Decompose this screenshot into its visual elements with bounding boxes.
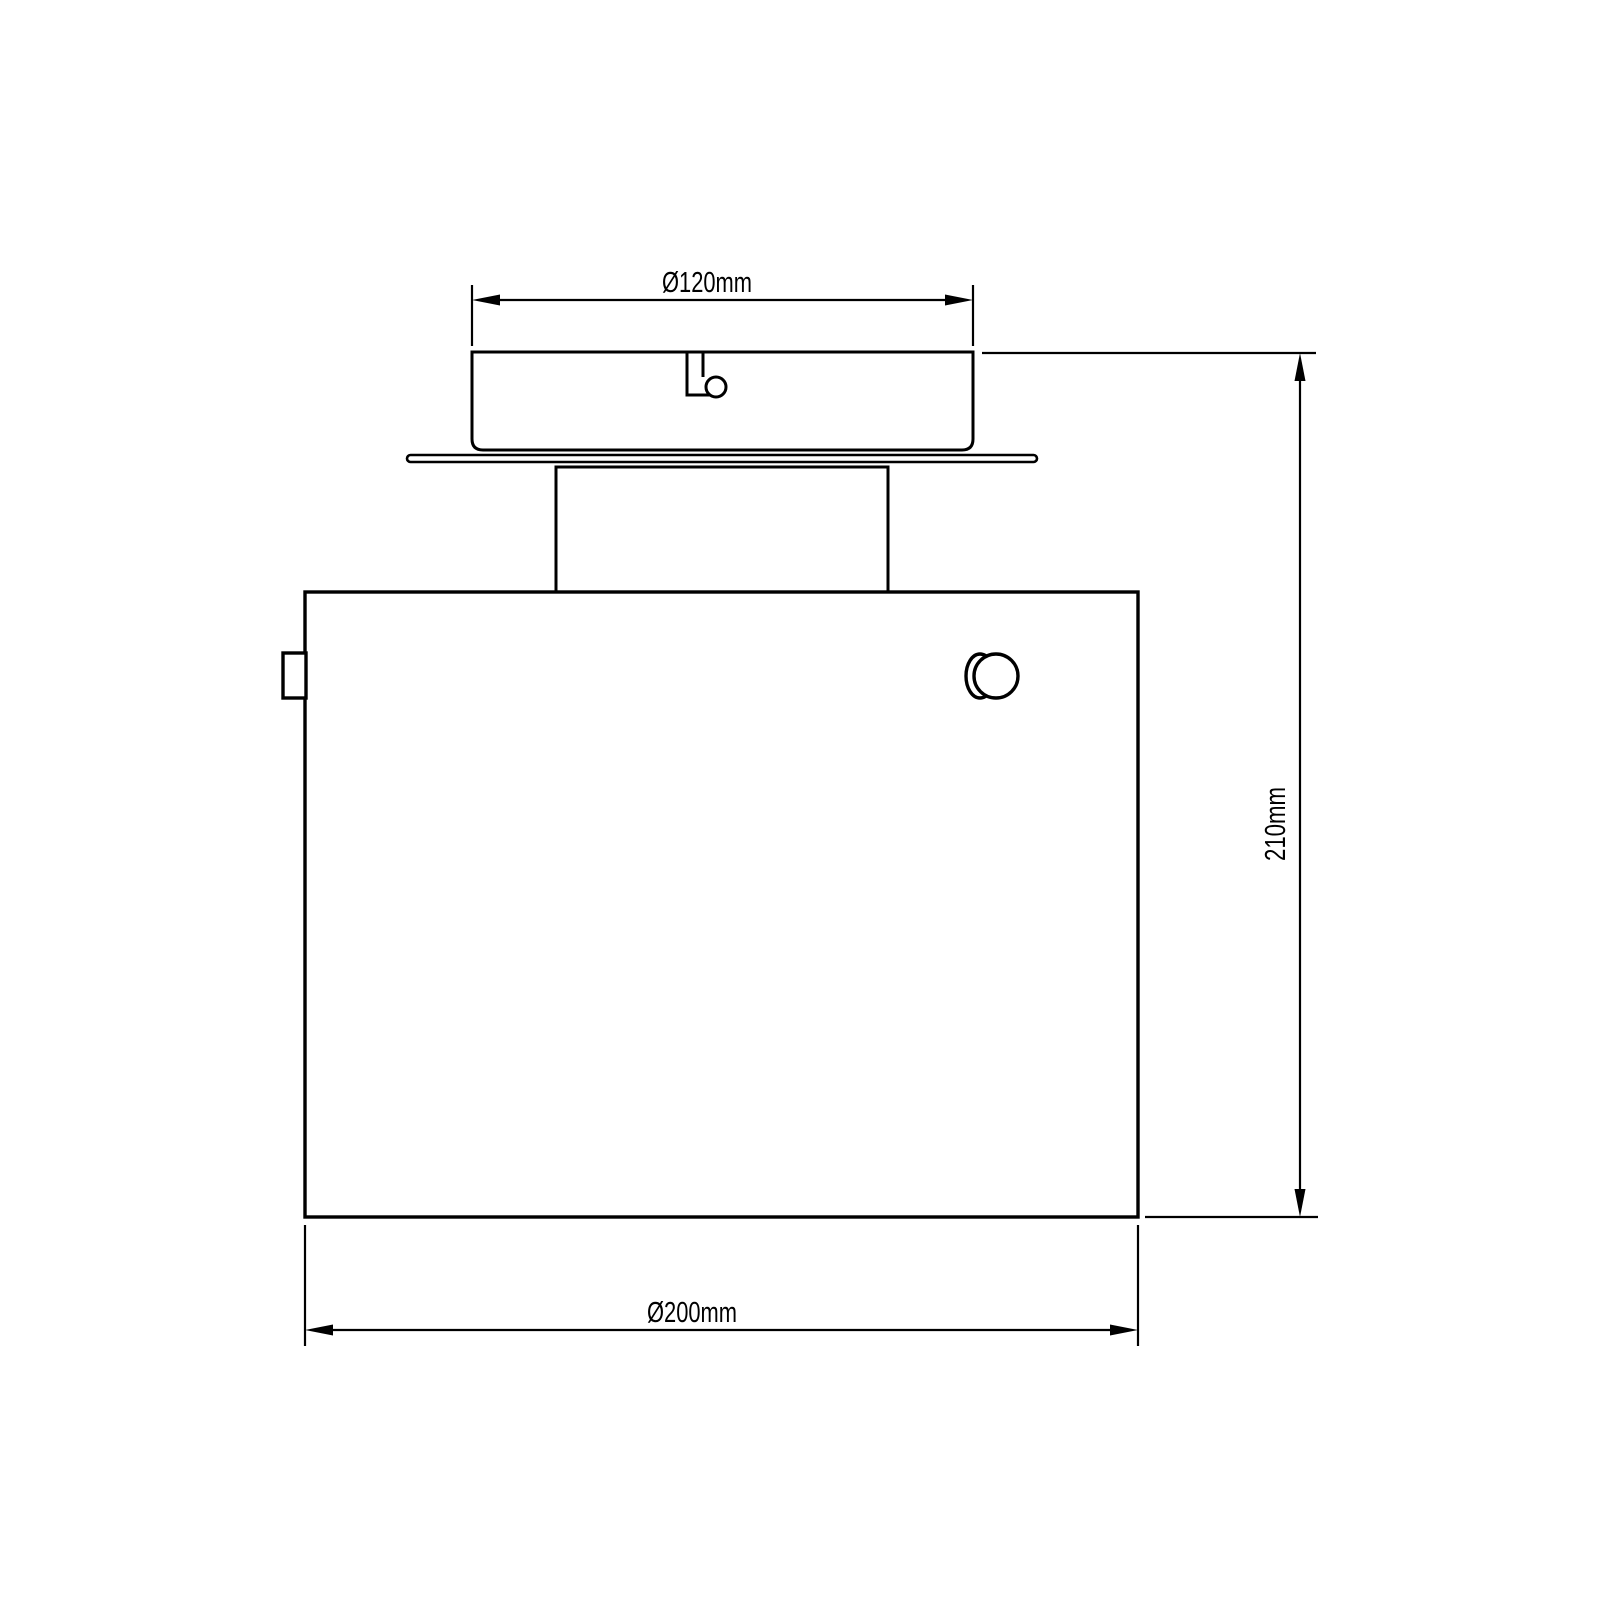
dimension-drawing: svet-svitidel.cz	[0, 0, 1600, 1600]
stem-outline	[556, 467, 888, 592]
arrowhead-right-icon	[945, 295, 973, 306]
shade-diameter-label: Ø200mm	[647, 1297, 737, 1329]
arrowhead-left-icon	[472, 295, 500, 306]
arrowhead-left-icon	[305, 1325, 333, 1336]
arrowhead-down-icon	[1295, 1189, 1306, 1217]
knob-circle	[974, 654, 1018, 698]
dimension-canopy-diameter: Ø120mm	[472, 267, 973, 346]
fixture-outline	[283, 352, 1138, 1217]
dimension-shade-diameter: Ø200mm	[305, 1225, 1138, 1346]
fixture-height-label: 210mm	[1260, 787, 1292, 861]
side-tab-outline	[283, 653, 306, 698]
arrowhead-right-icon	[1110, 1325, 1138, 1336]
technical-drawing-page: svet-svitidel.cz	[0, 0, 1600, 1600]
arrowhead-up-icon	[1295, 353, 1306, 381]
cable-hook-ring	[706, 377, 726, 397]
canopy-outline	[472, 352, 973, 450]
canopy-diameter-label: Ø120mm	[662, 267, 752, 299]
knob-detail	[966, 654, 1018, 698]
mounting-plate-outline	[407, 455, 1037, 462]
